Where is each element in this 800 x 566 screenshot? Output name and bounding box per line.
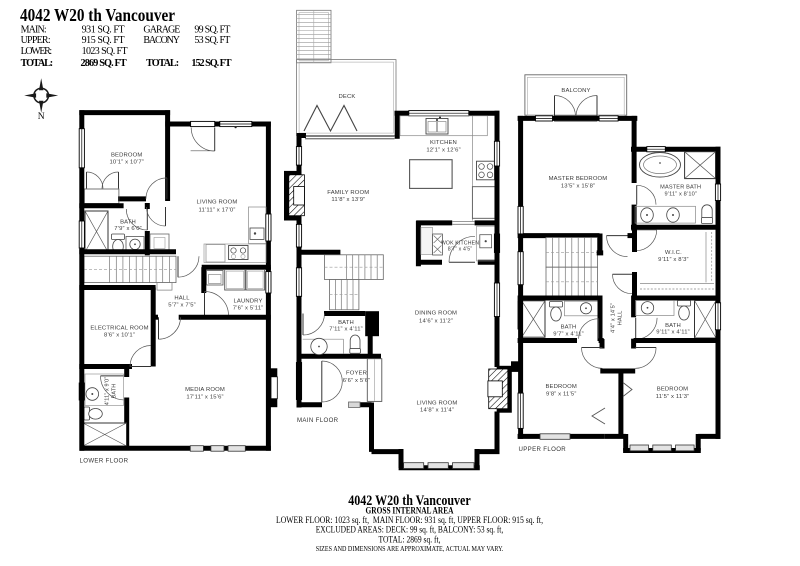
svg-text:TOTAL: 2869 sq. ft,: TOTAL: 2869 sq. ft, (379, 535, 441, 546)
svg-text:5’7” x 7’5”: 5’7” x 7’5” (168, 303, 196, 309)
svg-text:BATH: BATH (120, 220, 136, 226)
svg-text:FOYER: FOYER (346, 371, 367, 377)
svg-text:TOTAL:: TOTAL: (146, 58, 179, 69)
svg-text:BACONY: BACONY (143, 35, 180, 46)
svg-text:14’6” x 11’2”: 14’6” x 11’2” (419, 319, 453, 325)
svg-text:DECK: DECK (339, 94, 356, 100)
svg-text:LAUNDRY: LAUNDRY (233, 299, 262, 305)
svg-text:GROSS INTERNAL AREA: GROSS INTERNAL AREA (366, 505, 454, 515)
svg-text:13’5” x 15’8”: 13’5” x 15’8” (561, 184, 595, 190)
svg-text:53 SQ. FT: 53 SQ. FT (194, 35, 230, 46)
svg-text:9’11” x 8’10”: 9’11” x 8’10” (665, 192, 697, 198)
svg-text:MASTER BATH: MASTER BATH (660, 184, 701, 190)
svg-text:BEDROOM: BEDROOM (657, 386, 689, 392)
svg-text:BALCONY: BALCONY (561, 88, 590, 94)
svg-text:LOWER FLOOR: LOWER FLOOR (80, 457, 129, 464)
svg-text:7’9” x 6’0”: 7’9” x 6’0” (114, 226, 142, 232)
svg-text:LIVING ROOM: LIVING ROOM (197, 200, 238, 206)
svg-text:BATH: BATH (561, 325, 577, 331)
svg-text:6’6” x 5’6”: 6’6” x 5’6” (343, 378, 371, 384)
svg-text:W.I.C.: W.I.C. (665, 250, 682, 256)
svg-text:LOWER FLOOR: 1023 sq. ft, MAI: LOWER FLOOR: 1023 sq. ft, MAIN FLOOR: 93… (276, 515, 543, 526)
svg-text:BATH: BATH (665, 323, 681, 329)
svg-text:7’11” x 4’11”: 7’11” x 4’11” (329, 326, 363, 332)
svg-text:4042 W20 th Vancouver: 4042 W20 th Vancouver (20, 5, 175, 25)
svg-text:BATH: BATH (338, 320, 354, 326)
svg-text:ELECTRICAL ROOM: ELECTRICAL ROOM (90, 325, 148, 331)
svg-text:SIZES AND DIMENSIONS ARE APPRO: SIZES AND DIMENSIONS ARE APPROXIMATE, AC… (316, 545, 504, 553)
svg-text:MAIN FLOOR: MAIN FLOOR (297, 417, 339, 424)
svg-text:LIVING ROOM: LIVING ROOM (417, 400, 458, 406)
svg-text:EXCLUDED AREAS: DECK: 99 sq. f: EXCLUDED AREAS: DECK: 99 sq. ft, BALCONY… (316, 525, 504, 536)
svg-text:931 SQ. FT: 931 SQ. FT (82, 25, 125, 36)
svg-text:DINING ROOM: DINING ROOM (415, 311, 457, 317)
svg-text:TOTAL:: TOTAL: (21, 58, 54, 69)
svg-text:1023 SQ. FT: 1023 SQ. FT (82, 46, 128, 57)
svg-text:11’11” x 17’0”: 11’11” x 17’0” (199, 208, 236, 214)
svg-text:MAIN:: MAIN: (21, 25, 47, 36)
svg-text:HALL: HALL (174, 296, 190, 302)
svg-text:BEDROOM: BEDROOM (545, 384, 577, 390)
svg-text:WOK KITCHEN: WOK KITCHEN (441, 240, 479, 246)
svg-text:14’8” x 11’4”: 14’8” x 11’4” (420, 408, 454, 414)
svg-text:2869 SQ. FT: 2869 SQ. FT (81, 58, 127, 69)
svg-text:9’11” x 8’3”: 9’11” x 8’3” (658, 257, 689, 263)
svg-text:N: N (38, 112, 45, 122)
svg-text:MEDIA ROOM: MEDIA ROOM (185, 387, 225, 393)
svg-text:FAMILY ROOM: FAMILY ROOM (327, 190, 369, 196)
svg-text:10’1” x 10’7”: 10’1” x 10’7” (110, 160, 144, 166)
svg-text:BATH: BATH (112, 384, 118, 399)
svg-text:99 SQ. FT: 99 SQ. FT (194, 25, 230, 36)
svg-text:915 SQ. FT: 915 SQ. FT (82, 35, 125, 46)
svg-text:HALL: HALL (618, 311, 624, 326)
svg-text:LOWER:: LOWER: (21, 46, 53, 57)
svg-text:MASTER BEDROOM: MASTER BEDROOM (549, 176, 608, 182)
svg-text:9’11” x 4’11”: 9’11” x 4’11” (656, 329, 690, 335)
svg-text:BEDROOM: BEDROOM (111, 153, 143, 159)
svg-text:4’11” x 9’0”: 4’11” x 9’0” (105, 377, 111, 406)
svg-text:UPPER FLOOR: UPPER FLOOR (519, 446, 567, 453)
svg-text:4’4” x 14’5”: 4’4” x 14’5” (611, 303, 617, 333)
svg-text:UPPER:: UPPER: (21, 35, 51, 46)
svg-text:7’6” x 5’11”: 7’6” x 5’11” (233, 306, 264, 312)
svg-text:8’6” x 10’1”: 8’6” x 10’1” (104, 333, 135, 339)
svg-text:KITCHEN: KITCHEN (430, 140, 457, 146)
svg-text:152 SQ. FT: 152 SQ. FT (191, 58, 231, 69)
svg-text:11’8” x 13’9”: 11’8” x 13’9” (331, 197, 365, 203)
svg-text:17’11” x 15’6”: 17’11” x 15’6” (186, 395, 223, 401)
svg-text:GARAGE: GARAGE (143, 25, 180, 36)
svg-text:11’5” x 11’3”: 11’5” x 11’3” (656, 394, 690, 400)
svg-text:8’7” x 4’5”: 8’7” x 4’5” (448, 247, 473, 253)
svg-text:9’8” x 11’5”: 9’8” x 11’5” (546, 391, 577, 397)
svg-text:12’1” x 12’6”: 12’1” x 12’6” (426, 148, 460, 154)
